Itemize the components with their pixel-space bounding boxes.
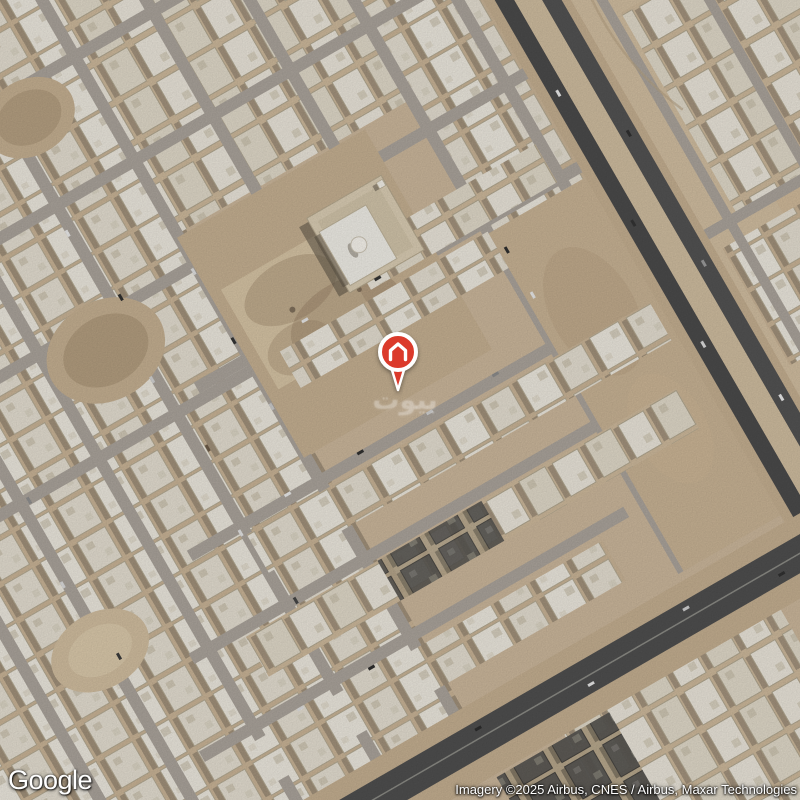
google-logo[interactable]: Google <box>8 765 92 796</box>
map-viewport[interactable]: بيوت Google Imagery ©2025 Airbus, CNES /… <box>0 0 800 800</box>
imagery-attribution: Imagery ©2025 Airbus, CNES / Airbus, Max… <box>455 782 797 797</box>
listing-watermark: بيوت <box>335 386 475 418</box>
